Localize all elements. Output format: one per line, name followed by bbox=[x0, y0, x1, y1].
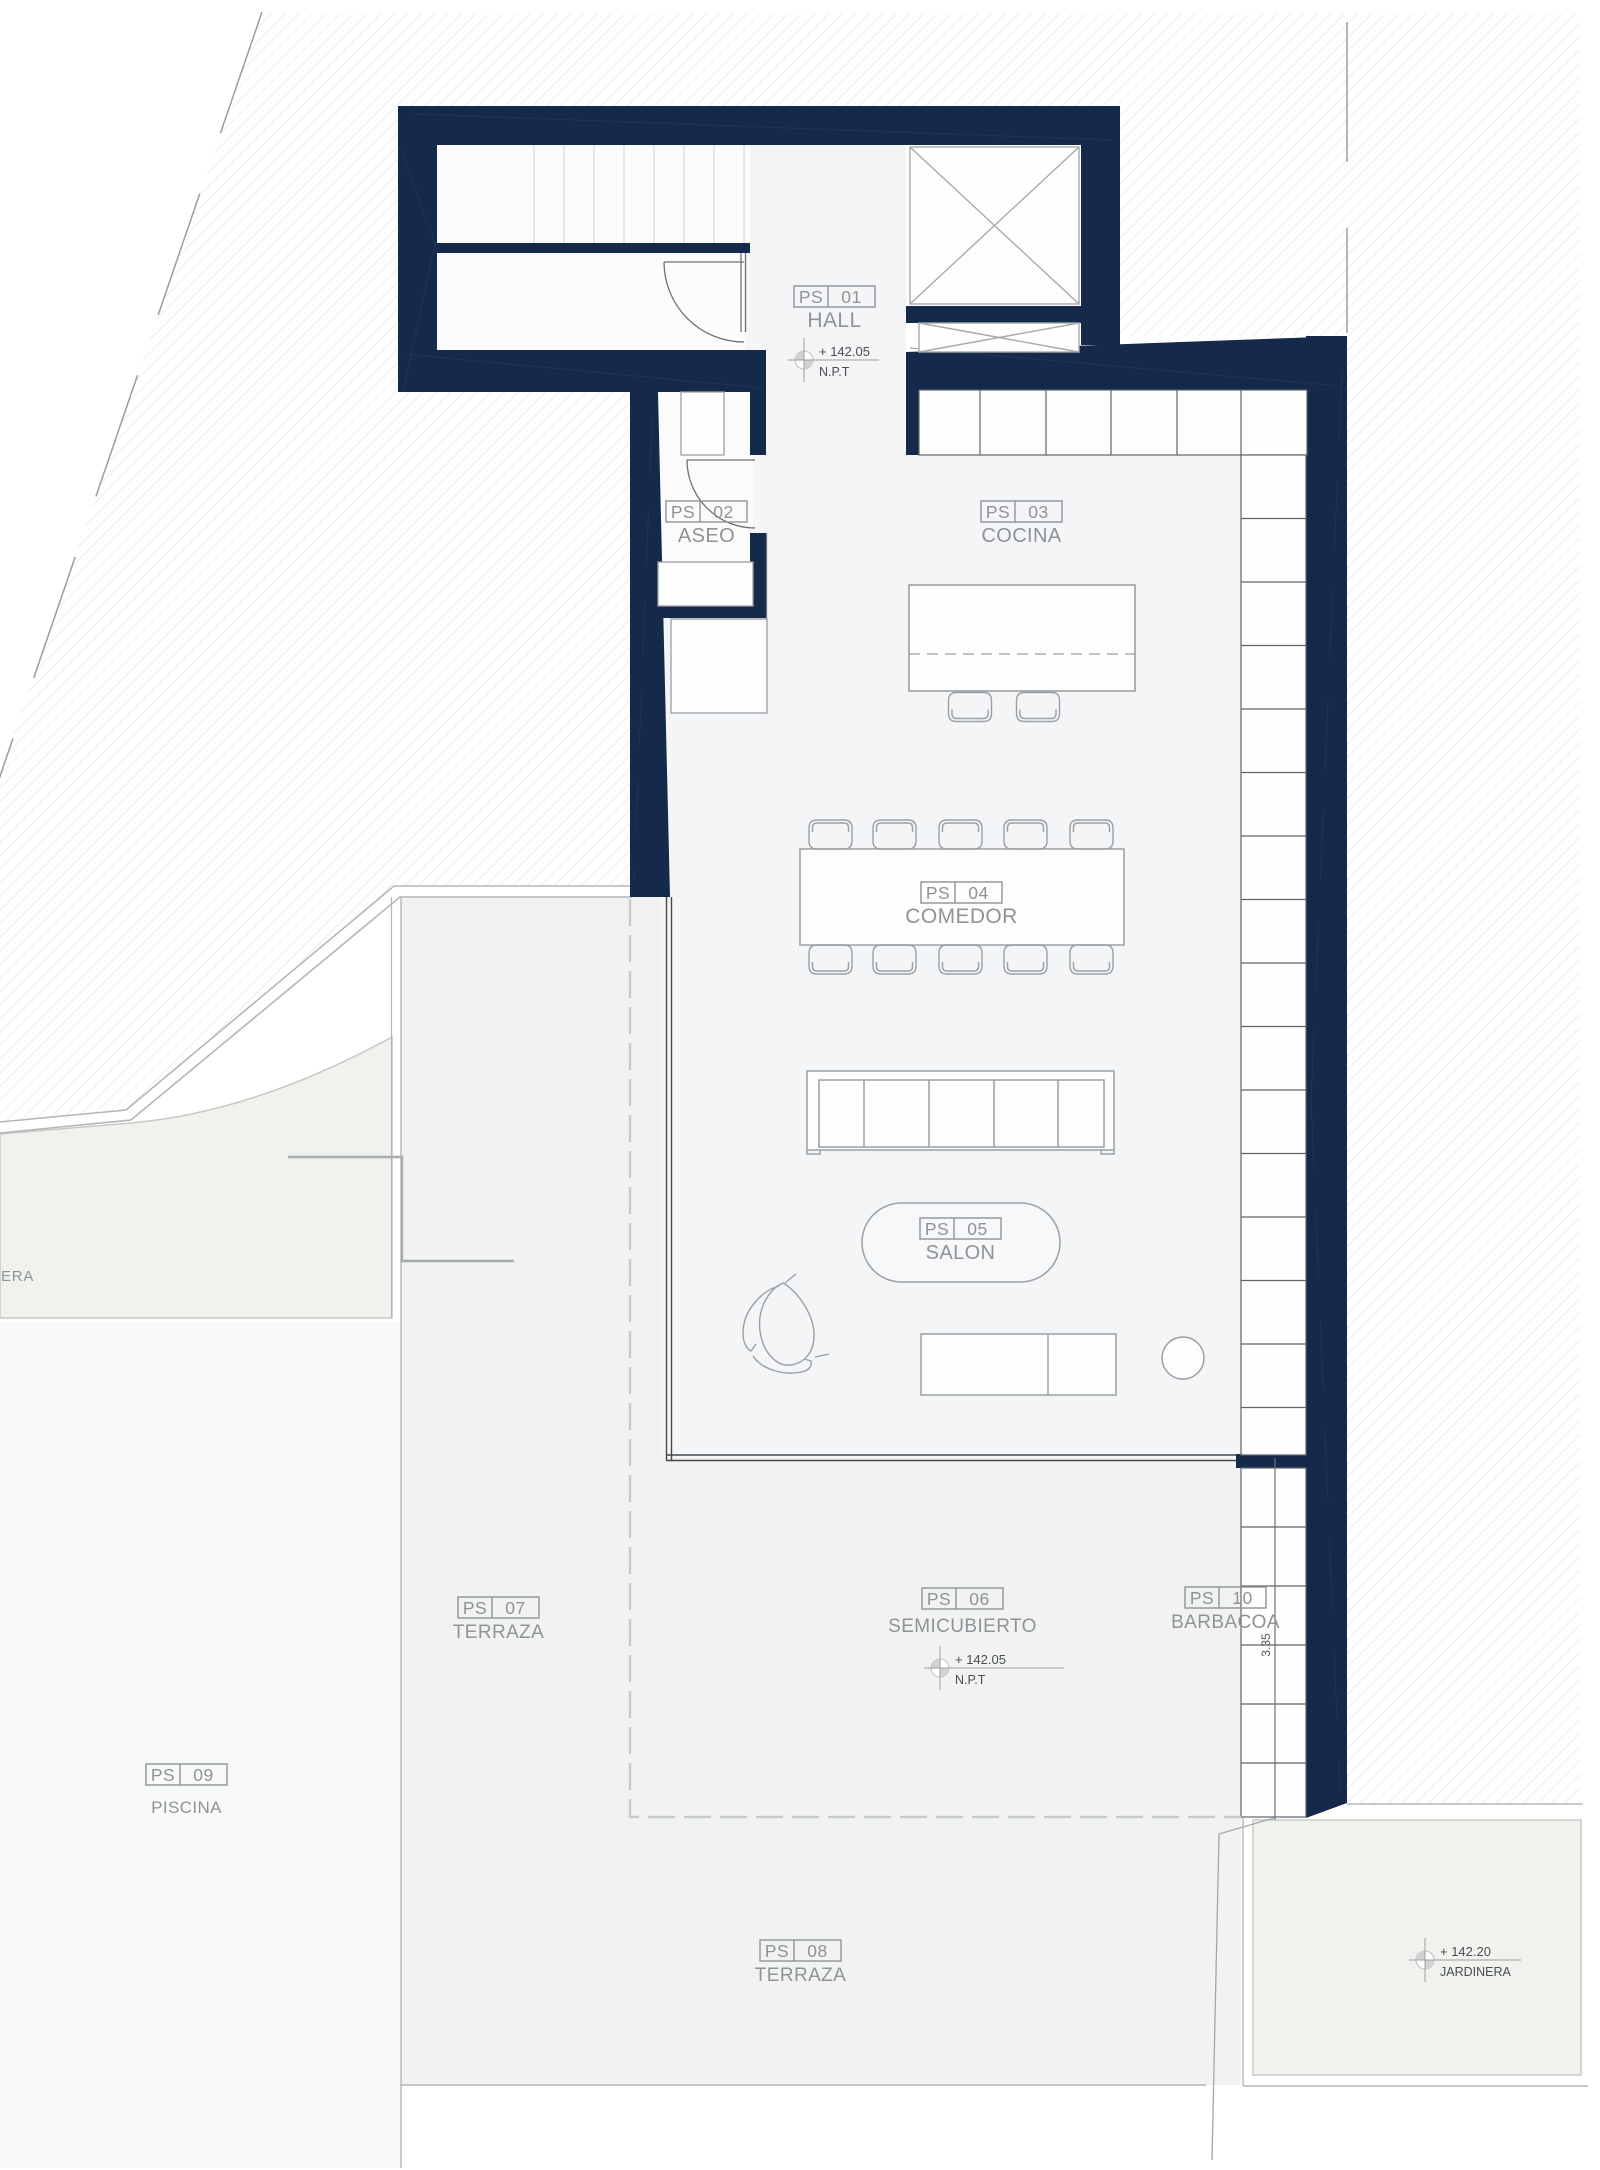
svg-text:08: 08 bbox=[807, 1941, 827, 1961]
svg-text:PS: PS bbox=[671, 502, 695, 522]
svg-text:COCINA: COCINA bbox=[981, 525, 1061, 547]
svg-text:SEMICUBIERTO: SEMICUBIERTO bbox=[888, 1616, 1037, 1637]
svg-text:TERRAZA: TERRAZA bbox=[453, 1622, 544, 1643]
svg-text:04: 04 bbox=[968, 883, 988, 903]
svg-text:JARDINERA: JARDINERA bbox=[0, 1268, 34, 1285]
svg-text:03: 03 bbox=[1028, 502, 1048, 522]
svg-text:N.P.T: N.P.T bbox=[955, 1673, 986, 1687]
svg-text:09: 09 bbox=[193, 1765, 213, 1785]
svg-text:05: 05 bbox=[967, 1219, 987, 1239]
svg-text:+ 142.05: + 142.05 bbox=[955, 1652, 1006, 1667]
svg-text:3.35: 3.35 bbox=[1259, 1633, 1273, 1657]
svg-text:COMEDOR: COMEDOR bbox=[905, 905, 1017, 928]
svg-text:BARBACOA: BARBACOA bbox=[1171, 1612, 1280, 1633]
svg-text:+ 142.05: + 142.05 bbox=[819, 344, 870, 359]
svg-text:TERRAZA: TERRAZA bbox=[755, 1965, 846, 1986]
svg-text:PS: PS bbox=[925, 1219, 949, 1239]
svg-text:PS: PS bbox=[1190, 1588, 1214, 1608]
svg-text:PS: PS bbox=[151, 1765, 175, 1785]
svg-text:N.P.T: N.P.T bbox=[819, 365, 850, 379]
svg-text:HALL: HALL bbox=[807, 309, 861, 332]
svg-text:07: 07 bbox=[505, 1598, 525, 1618]
svg-text:10: 10 bbox=[1232, 1588, 1252, 1608]
svg-text:PS: PS bbox=[765, 1941, 789, 1961]
svg-text:JARDINERA: JARDINERA bbox=[1440, 1965, 1512, 1979]
svg-text:+ 142.20: + 142.20 bbox=[1440, 1944, 1491, 1959]
svg-text:02: 02 bbox=[713, 502, 733, 522]
svg-text:ASEO: ASEO bbox=[678, 525, 735, 547]
svg-text:PS: PS bbox=[986, 502, 1010, 522]
svg-text:PS: PS bbox=[927, 1589, 951, 1609]
svg-text:01: 01 bbox=[841, 287, 861, 307]
svg-text:06: 06 bbox=[969, 1589, 989, 1609]
svg-text:PISCINA: PISCINA bbox=[151, 1798, 222, 1817]
svg-text:SALON: SALON bbox=[926, 1242, 996, 1264]
svg-text:PS: PS bbox=[926, 883, 950, 903]
svg-text:PS: PS bbox=[463, 1598, 487, 1618]
svg-text:PS: PS bbox=[799, 287, 823, 307]
